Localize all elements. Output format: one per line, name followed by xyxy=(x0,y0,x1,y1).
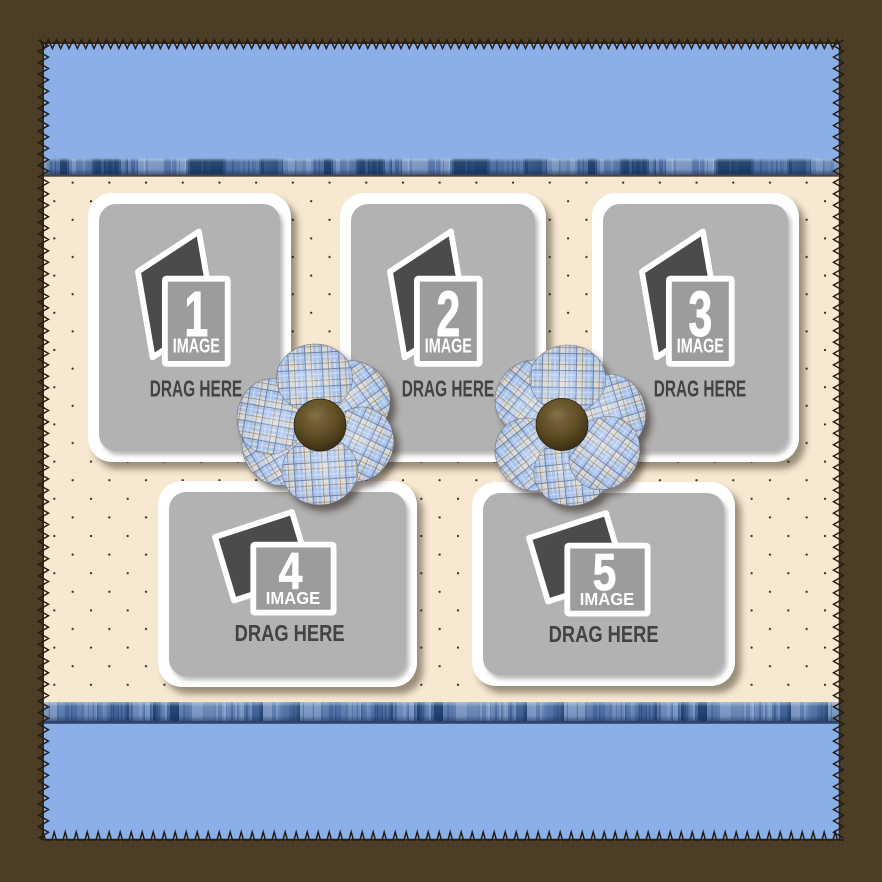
svg-text:IMAGE: IMAGE xyxy=(580,589,634,608)
svg-text:IMAGE: IMAGE xyxy=(424,334,471,357)
svg-text:IMAGE: IMAGE xyxy=(265,589,319,608)
svg-text:DRAG HERE: DRAG HERE xyxy=(401,377,493,403)
svg-text:DRAG HERE: DRAG HERE xyxy=(654,377,746,403)
svg-text:DRAG HERE: DRAG HERE xyxy=(549,621,659,647)
svg-text:DRAG HERE: DRAG HERE xyxy=(234,621,344,647)
svg-text:DRAG HERE: DRAG HERE xyxy=(150,377,242,403)
svg-text:IMAGE: IMAGE xyxy=(173,334,220,357)
svg-text:IMAGE: IMAGE xyxy=(677,334,724,357)
